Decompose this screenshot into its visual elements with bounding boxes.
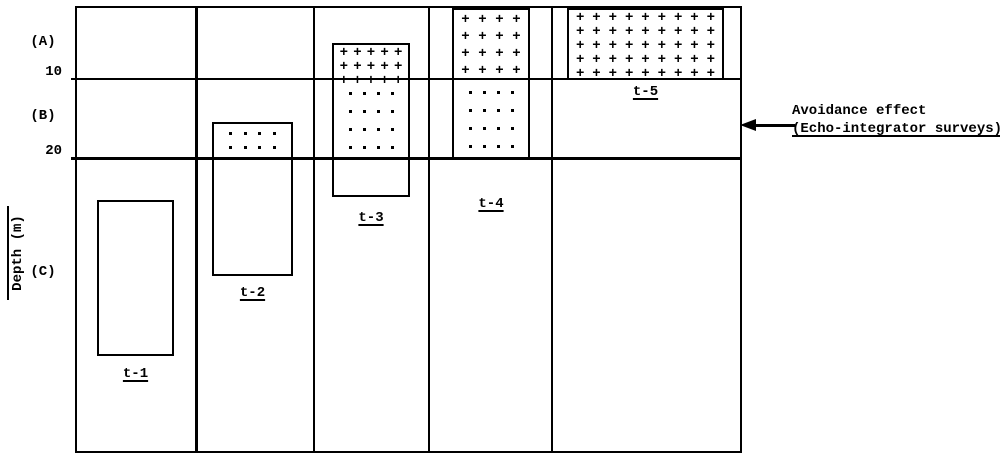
school-box-t3: +++++++++++++++ [332, 43, 410, 197]
annotation-line1: Avoidance effect [792, 103, 926, 120]
annotation-line2: (Echo-integrator surveys) [792, 121, 1000, 138]
school-box-t3-plain [334, 159, 408, 195]
school-box-t4-plus-zone: ++++++++++++++++ [454, 10, 528, 80]
plot-area: +++++++++++++++ ++++++++++++++++ +++++++… [75, 6, 742, 453]
school-box-t3-dot-zone [334, 81, 408, 159]
school-box-t5-plus-zone: ++++++++++++++++++++++++++++++++++++++++… [569, 10, 722, 82]
period-label-t5: t-5 [567, 84, 724, 100]
school-box-t2-dot-zone [214, 124, 291, 157]
depth-axis-title: Depth (m) [10, 205, 26, 301]
figure-canvas: (A) 10 (B) 20 (C) Depth (m) ++++++++++++… [0, 0, 1000, 461]
zone-a-label: (A) [30, 35, 56, 50]
school-box-t4-dot-zone [454, 80, 528, 158]
depth-axis-title-underline [7, 206, 9, 300]
period-label-t3: t-3 [332, 210, 410, 226]
school-box-t3-plus-zone: +++++++++++++++ [334, 45, 408, 81]
period-label-t1: t-1 [97, 366, 174, 382]
arrow-left-icon [740, 119, 756, 131]
zone-b-label: (B) [30, 109, 56, 124]
depth-tick-20: 20 [36, 144, 62, 159]
school-box-t5: ++++++++++++++++++++++++++++++++++++++++… [567, 8, 724, 80]
depth-tick-10: 10 [36, 65, 62, 80]
column-divider-2 [313, 8, 315, 451]
arrow-shaft [755, 124, 795, 127]
school-box-t1-plain [99, 202, 172, 354]
column-divider-4 [551, 8, 553, 451]
column-divider-3 [428, 8, 430, 451]
period-label-t4: t-4 [452, 196, 530, 212]
column-divider-1 [195, 8, 198, 451]
school-box-t1 [97, 200, 174, 356]
zone-c-label: (C) [30, 265, 56, 280]
school-box-t2 [212, 122, 293, 276]
school-box-t2-plain [214, 157, 291, 274]
school-box-t4: ++++++++++++++++ [452, 8, 530, 160]
period-label-t2: t-2 [212, 285, 293, 301]
